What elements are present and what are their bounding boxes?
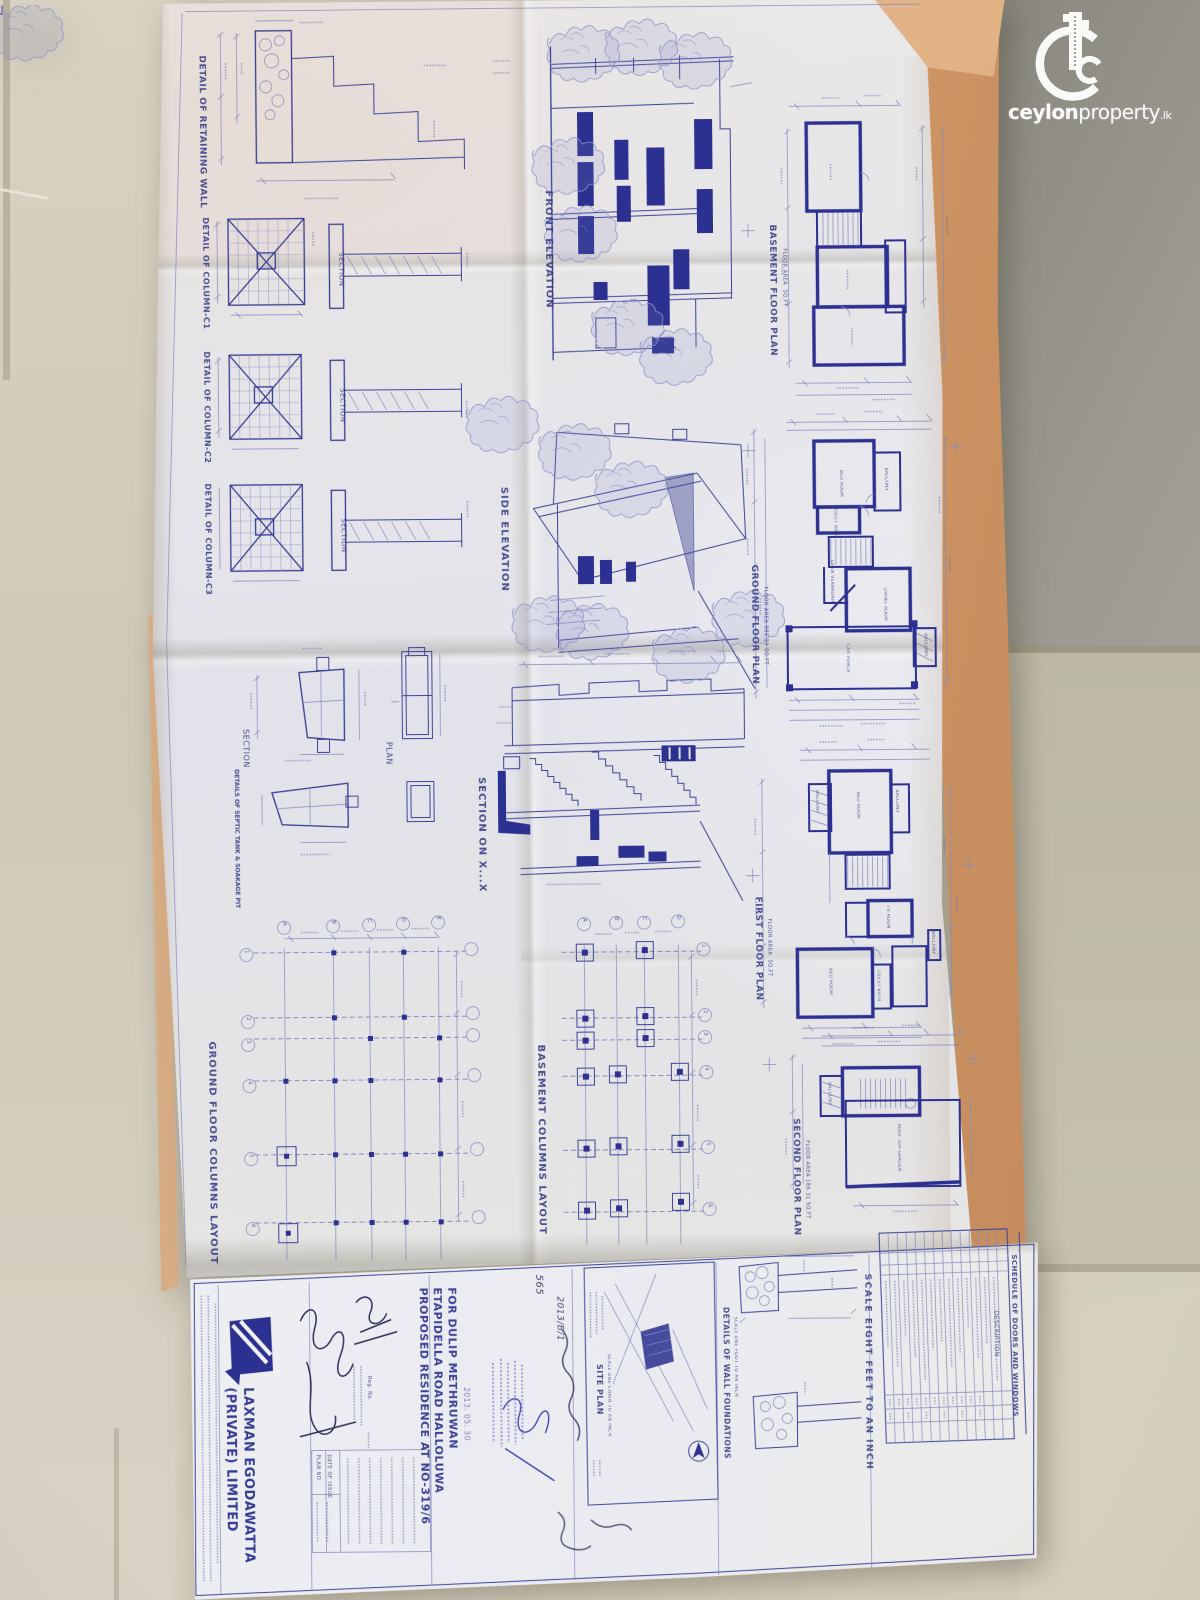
date-of-issue-label: DATE OF ISSUE — [326, 1454, 332, 1498]
plan-no-label: PLAN NO — [315, 1454, 321, 1480]
caption-column-c1: DETAIL OF COLUMN-C1 — [201, 217, 211, 329]
stamp-date: 2013. 05. 30 — [462, 1387, 471, 1441]
caption-retaining-wall: DETAIL OF RETAINING WALL — [196, 55, 207, 208]
room-label: BED ROOM — [838, 470, 843, 497]
caption-septic-plan: PLAN — [384, 742, 393, 765]
room-label: BALCONY — [930, 931, 935, 954]
caption-section-c3: SECTION — [340, 518, 348, 552]
handwritten-reference: 2013/B/1 — [554, 1296, 564, 1341]
septic-tank-drawings — [251, 647, 447, 855]
reg-no-label: Reg. No. — [366, 1376, 372, 1401]
room-label: BED ROOM — [855, 792, 860, 819]
caption-wall-foundations: DETAILS OF WALL FOUNDATIONS — [721, 1307, 731, 1459]
caption-scale-note: SCALE EIGHT FEET TO AN INCH — [862, 1274, 874, 1471]
wall-foundation-drawings — [739, 1256, 862, 1449]
room-label: BALCONY — [923, 633, 928, 656]
project-title: PROPOSED RESIDENCE AT NO-319/6ETAPIDELLA… — [415, 1287, 460, 1524]
room-label: TV ROOM — [885, 905, 890, 928]
room-label: BALCONY — [894, 789, 899, 812]
retaining-wall-drawing — [217, 19, 465, 199]
ground-columns-layout-drawing — [240, 916, 486, 1262]
caption-site-plan-scale: SCALE ONE CHAIN TO AN INCH — [606, 1354, 612, 1437]
first-floor-plan-drawing — [744, 739, 978, 1045]
schedule-description-header: DESCRIPTION — [992, 1311, 999, 1357]
caption-section-c2: SECTION — [338, 388, 346, 422]
room-label: BALCONY — [883, 467, 888, 490]
caption-first-plan: FIRST FLOOR PLAN — [753, 897, 764, 1001]
caption-ground-columns: GROUND FLOOR COLUMNS LAYOUT — [206, 1041, 219, 1264]
room-label: TOILET BATH — [832, 506, 837, 538]
caption-basement-columns: BASEMENT COLUMNS LAYOUT — [535, 1044, 548, 1234]
blueprint-linework — [0, 0, 1200, 1600]
caption-site-plan: SITE PLAN — [595, 1364, 604, 1415]
room-label: BALCONY — [826, 1082, 831, 1105]
room-label: ROOF TOP GARDEN — [896, 1123, 901, 1171]
room-label: OPEN VERANDAH — [829, 560, 834, 603]
watermark: ceylonproperty.lk — [995, 8, 1195, 138]
caption-second-plan: SECOND FLOOR PLAN — [791, 1118, 802, 1235]
caption-basement-floor-area: FLOOR AREA SQ.FT — [781, 248, 788, 306]
room-label: TOILET BATH — [875, 970, 880, 1002]
room-label: BED ROOM — [827, 968, 832, 995]
caption-second-floor-area: FLOOR AREA 186.31 SQ.FT — [804, 1140, 811, 1219]
caption-front-elevation: FRONT ELEVATION — [543, 190, 555, 308]
caption-section-xx: SECTION ON X...X — [476, 777, 488, 893]
company-name: LAXMAN EGODAWATTA(PRIVATE) LIMITED — [221, 1387, 258, 1563]
ground-floor-plan-drawing — [741, 411, 966, 727]
caption-side-elevation: SIDE ELEVATION — [498, 487, 510, 592]
schedule-title: SCHEDULE OF DOORS AND WINDOWS — [1010, 1254, 1019, 1417]
handwritten-note: 565 — [533, 1275, 544, 1296]
company-logo — [224, 1317, 273, 1385]
room-label: CAR PORCH — [845, 644, 850, 673]
caption-section-c1: SECTION — [337, 252, 345, 286]
section-xx-drawing — [497, 651, 746, 903]
caption-ground-floor-area: FLOOR AREA 886.29 SQ.FT — [762, 587, 769, 666]
watermark-text: ceylonproperty.lk — [1008, 100, 1188, 124]
caption-column-c3: DETAIL OF COLUMN-C3 — [203, 483, 213, 595]
caption-column-c2: DETAIL OF COLUMN-C2 — [202, 351, 212, 463]
caption-first-floor-area: FLOOR AREA SQ.FT — [766, 919, 773, 977]
room-label: LIVING ROOM — [882, 587, 887, 621]
caption-septic: DETAILS OF SEPTIC TANK & SOAKAGE PIT — [233, 769, 241, 908]
photo-of-blueprint: DETAIL OF RETAINING WALL DETAIL OF COLUM… — [0, 0, 1200, 1600]
caption-septic-section: SECTION — [241, 729, 250, 768]
site-plan-drawing — [584, 1262, 718, 1505]
blueprint-sheet: DETAIL OF RETAINING WALL DETAIL OF COLUM… — [0, 0, 1200, 1600]
schedule-table — [879, 1228, 1026, 1443]
caption-wall-foundations-scale: SCALE ONE FOOT TO AN INCH — [733, 1317, 739, 1397]
caption-basement-plan: BASEMENT FLOOR PLAN — [767, 224, 778, 356]
caption-ground-plan: GROUND FLOOR PLAN — [749, 565, 760, 685]
room-label: BALCONY — [814, 790, 819, 813]
